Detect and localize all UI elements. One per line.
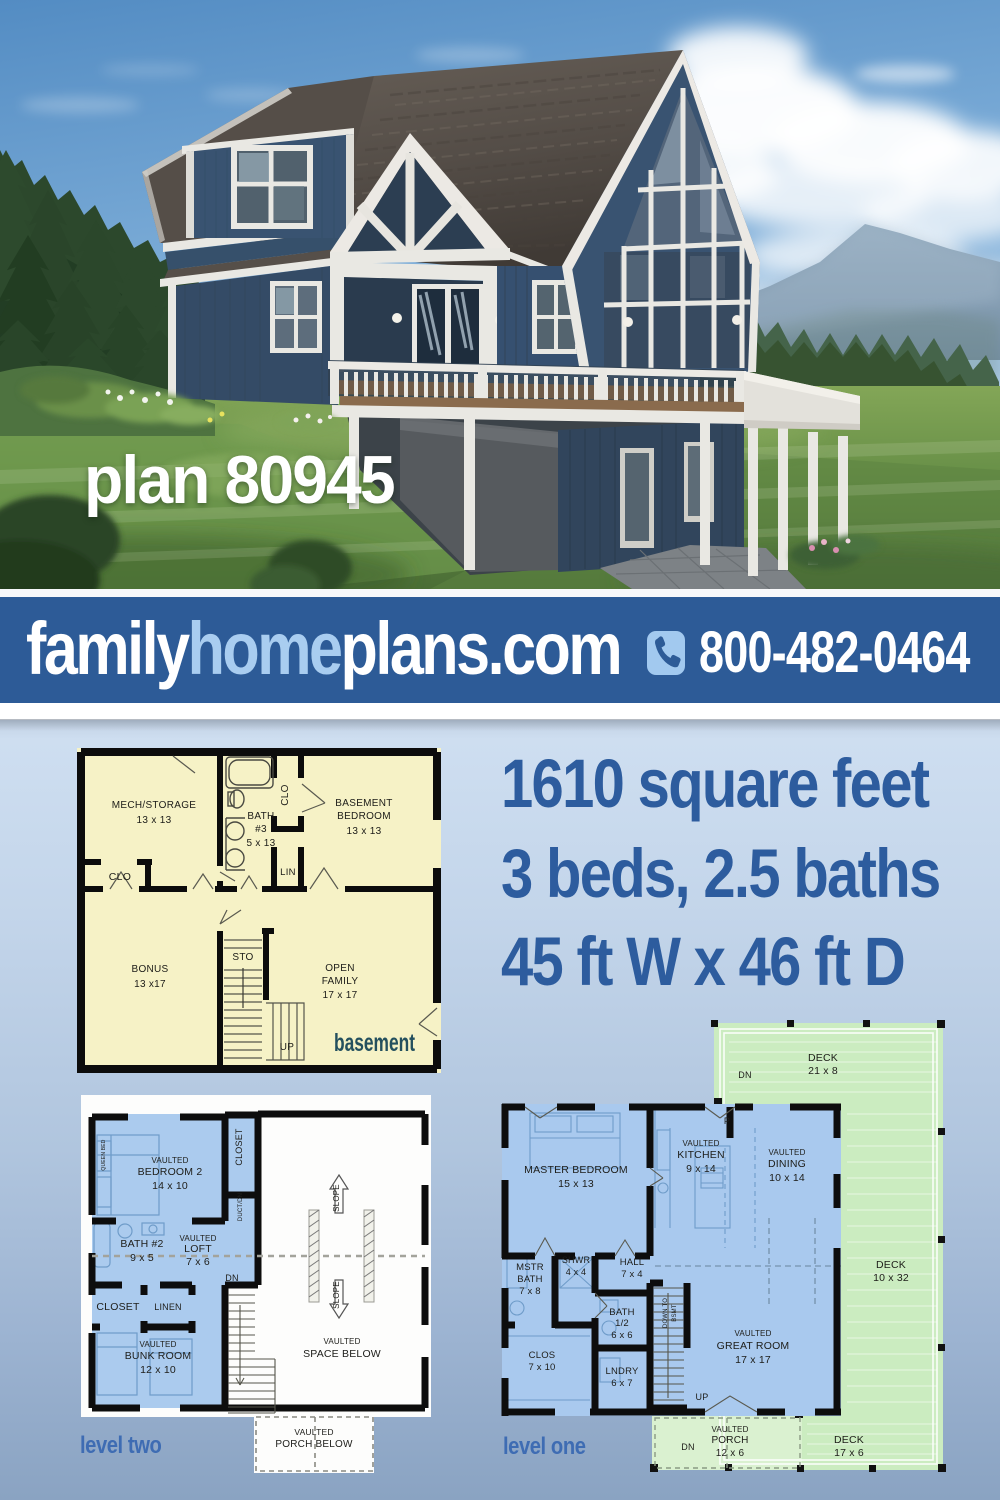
svg-text:10 x 32: 10 x 32 — [873, 1272, 909, 1284]
svg-text:12 x 10: 12 x 10 — [140, 1364, 176, 1376]
svg-text:13 x 13: 13 x 13 — [137, 815, 172, 826]
svg-text:VAULTED: VAULTED — [139, 1340, 176, 1349]
svg-text:SHWR: SHWR — [562, 1255, 591, 1265]
svg-text:12 x 6: 12 x 6 — [716, 1448, 745, 1459]
svg-text:4 x 4: 4 x 4 — [566, 1267, 587, 1277]
svg-text:CLO: CLO — [280, 784, 291, 805]
svg-text:VAULTED: VAULTED — [682, 1139, 719, 1148]
svg-text:DECK: DECK — [834, 1434, 864, 1446]
svg-text:CLOSET: CLOSET — [96, 1301, 140, 1313]
svg-text:BEDROOM 2: BEDROOM 2 — [138, 1166, 203, 1178]
svg-text:BSMT: BSMT — [672, 1304, 678, 1322]
svg-text:DECK: DECK — [876, 1259, 906, 1271]
svg-text:BATH: BATH — [517, 1274, 542, 1285]
svg-text:VAULTED: VAULTED — [734, 1329, 771, 1338]
svg-text:BASEMENT: BASEMENT — [335, 798, 392, 809]
svg-text:BATH: BATH — [609, 1307, 634, 1318]
svg-text:P: P — [724, 1116, 730, 1126]
svg-text:17 x 17: 17 x 17 — [323, 990, 358, 1001]
svg-text:7 x 4: 7 x 4 — [621, 1269, 643, 1280]
svg-text:DOWN TO: DOWN TO — [663, 1298, 669, 1328]
svg-text:13 x 13: 13 x 13 — [347, 826, 382, 837]
svg-text:VAULTED: VAULTED — [294, 1427, 333, 1437]
svg-text:DN: DN — [225, 1273, 238, 1283]
svg-text:CLOSET: CLOSET — [234, 1128, 244, 1166]
svg-text:BATH #2: BATH #2 — [120, 1238, 163, 1250]
svg-text:BEDROOM: BEDROOM — [337, 811, 391, 822]
svg-text:VAULTED: VAULTED — [711, 1425, 748, 1434]
svg-text:VAULTED: VAULTED — [323, 1337, 360, 1346]
svg-text:MSTR: MSTR — [516, 1262, 544, 1273]
svg-text:7 x 10: 7 x 10 — [528, 1362, 555, 1373]
svg-text:17 x 17: 17 x 17 — [735, 1354, 771, 1366]
svg-text:17 x 6: 17 x 6 — [834, 1447, 864, 1459]
svg-text:9 x 5: 9 x 5 — [130, 1252, 154, 1264]
svg-text:STO: STO — [232, 952, 253, 963]
svg-text:UP: UP — [696, 1392, 709, 1402]
svg-text:VAULTED: VAULTED — [179, 1234, 216, 1243]
svg-text:SLOPE: SLOPE — [332, 1184, 341, 1212]
svg-text:7 x 8: 7 x 8 — [519, 1286, 541, 1297]
svg-text:BATH: BATH — [247, 811, 274, 822]
svg-text:HALL: HALL — [620, 1257, 645, 1268]
svg-text:MASTER BEDROOM: MASTER BEDROOM — [524, 1164, 628, 1176]
svg-text:DINING: DINING — [768, 1158, 806, 1170]
svg-text:10 x 14: 10 x 14 — [769, 1172, 805, 1184]
svg-text:DN: DN — [681, 1442, 694, 1452]
svg-text:LINEN: LINEN — [154, 1302, 182, 1312]
svg-text:QUEEN BED: QUEEN BED — [101, 1139, 107, 1170]
svg-text:GREAT ROOM: GREAT ROOM — [717, 1340, 790, 1352]
svg-text:SPACE BELOW: SPACE BELOW — [303, 1348, 381, 1360]
svg-text:5 x 13: 5 x 13 — [246, 838, 275, 849]
svg-text:LIN: LIN — [280, 867, 296, 878]
svg-text:basement: basement — [334, 1029, 415, 1057]
svg-text:DN: DN — [738, 1070, 751, 1080]
svg-text:15 x 13: 15 x 13 — [558, 1178, 594, 1190]
svg-text:SLOPE: SLOPE — [332, 1281, 341, 1309]
svg-text:6 x 6: 6 x 6 — [611, 1330, 633, 1341]
svg-text:6 x 7: 6 x 7 — [611, 1378, 633, 1389]
svg-text:FAMILY: FAMILY — [322, 976, 359, 987]
svg-text:OPEN: OPEN — [325, 963, 355, 974]
svg-text:9 x 14: 9 x 14 — [686, 1163, 716, 1175]
svg-text:UP: UP — [280, 1042, 295, 1053]
svg-text:LOFT: LOFT — [184, 1243, 212, 1255]
svg-text:#3: #3 — [255, 824, 267, 835]
svg-text:VAULTED: VAULTED — [151, 1156, 188, 1165]
svg-text:DUCT/DN: DUCT/DN — [238, 1193, 244, 1221]
svg-text:13 x17: 13 x17 — [134, 979, 166, 990]
svg-text:MECH/STORAGE: MECH/STORAGE — [112, 800, 197, 811]
svg-text:21 x 8: 21 x 8 — [808, 1065, 838, 1077]
svg-text:BONUS: BONUS — [131, 964, 168, 975]
svg-text:14 x 10: 14 x 10 — [152, 1180, 188, 1192]
svg-text:PORCH: PORCH — [711, 1435, 748, 1446]
svg-text:CLO: CLO — [109, 871, 132, 883]
svg-text:CLOS: CLOS — [529, 1350, 556, 1361]
svg-text:BUNK ROOM: BUNK ROOM — [125, 1350, 192, 1362]
svg-text:VAULTED: VAULTED — [768, 1148, 805, 1157]
svg-text:7 x 6: 7 x 6 — [186, 1256, 210, 1268]
svg-text:LNDRY: LNDRY — [605, 1366, 638, 1377]
svg-text:PORCH BELOW: PORCH BELOW — [275, 1439, 353, 1450]
svg-text:DECK: DECK — [808, 1052, 838, 1064]
svg-text:KITCHEN: KITCHEN — [677, 1149, 725, 1161]
svg-text:1/2: 1/2 — [615, 1318, 629, 1329]
